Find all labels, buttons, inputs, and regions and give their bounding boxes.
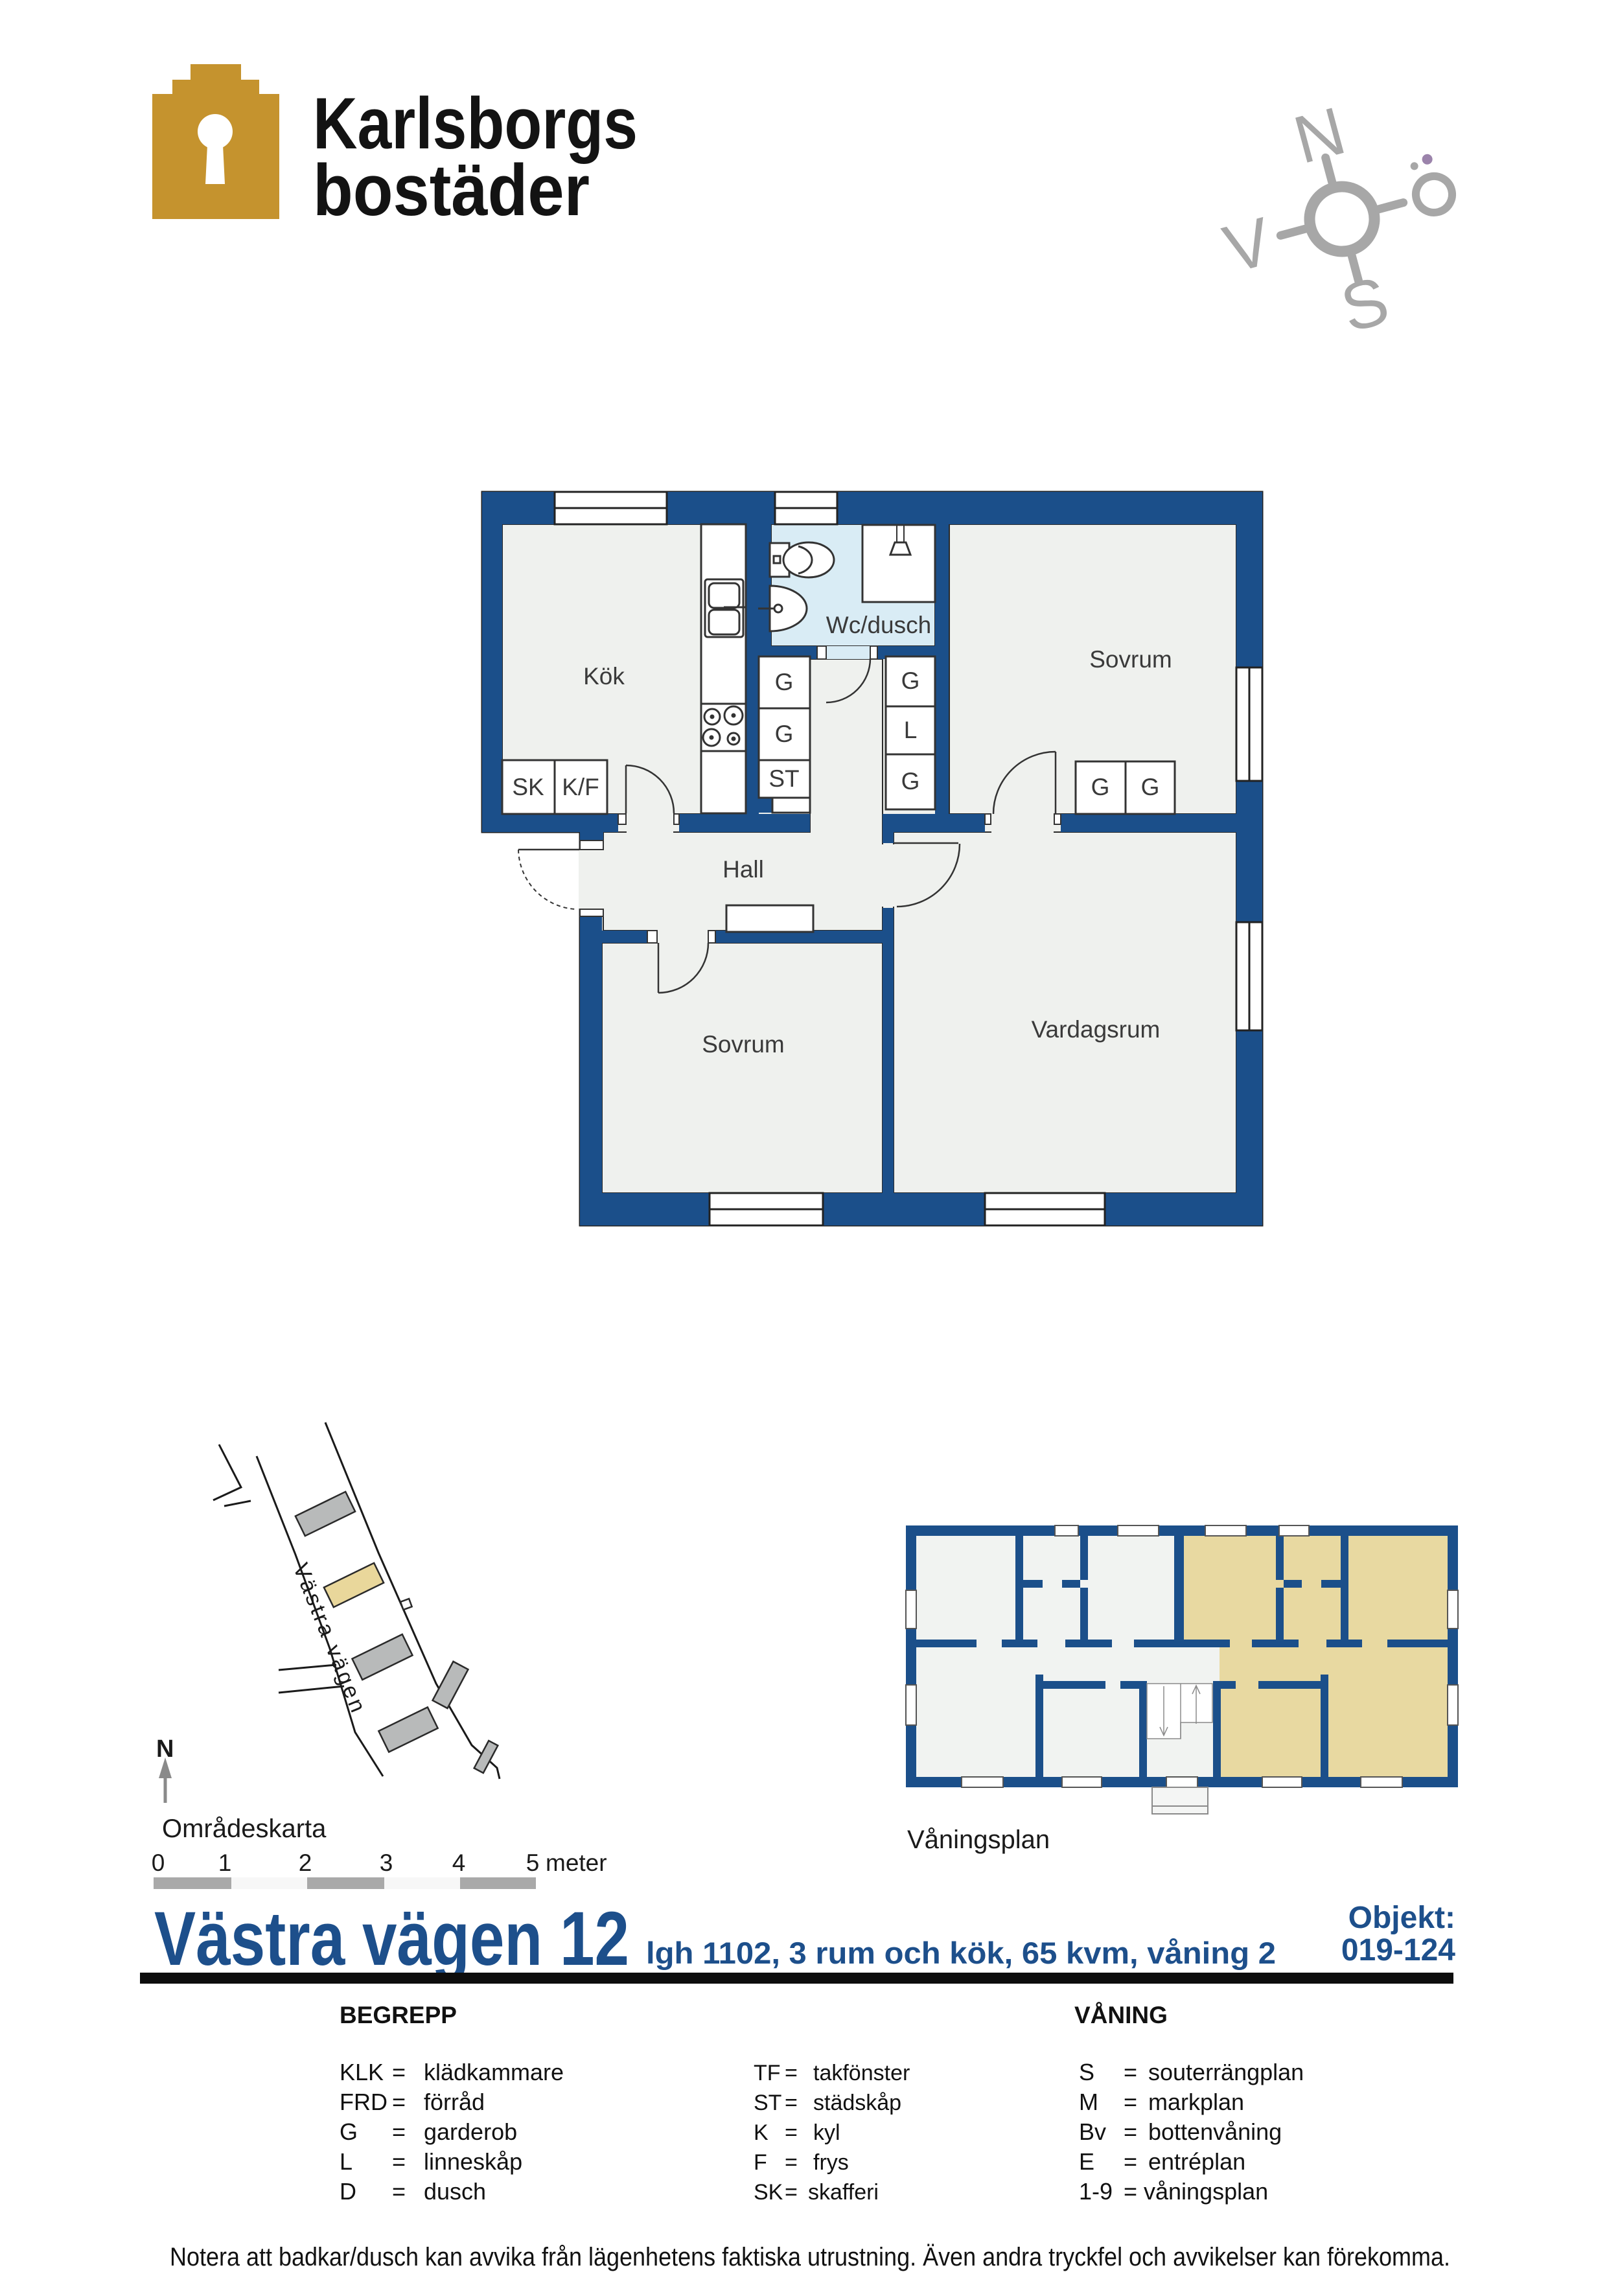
svg-text:F: F <box>754 2150 767 2175</box>
svg-text:takfönster: takfönster <box>813 2061 910 2085</box>
svg-text:0: 0 <box>152 1850 165 1876</box>
svg-text:Områdeskarta: Områdeskarta <box>162 1815 327 1843</box>
svg-text:Västra vägen 12: Västra vägen 12 <box>154 1896 629 1982</box>
svg-text:G: G <box>775 721 794 747</box>
svg-text:=: = <box>785 2091 798 2115</box>
svg-text:G: G <box>775 669 794 695</box>
svg-text:Bv: Bv <box>1079 2118 1106 2145</box>
svg-text:Vardagsrum: Vardagsrum <box>1032 1016 1161 1043</box>
svg-text:ST: ST <box>769 765 799 792</box>
svg-text:=: = <box>392 2178 406 2205</box>
svg-text:bottenvåning: bottenvåning <box>1148 2118 1282 2145</box>
svg-text:bostäder: bostäder <box>313 150 590 231</box>
svg-text:klädkammare: klädkammare <box>424 2059 564 2085</box>
svg-text:lgh 1102, 3 rum och kök, 65 k: lgh 1102, 3 rum och kök, 65 kvm, våning … <box>646 1936 1276 1970</box>
svg-text:G: G <box>340 2118 358 2145</box>
svg-text:L: L <box>904 717 918 743</box>
svg-text:=: = <box>392 2148 406 2175</box>
svg-text:4: 4 <box>452 1850 466 1876</box>
svg-text:G: G <box>901 667 920 694</box>
svg-text:1-9: 1-9 <box>1079 2178 1113 2205</box>
svg-text:BEGREPP: BEGREPP <box>340 2002 457 2028</box>
svg-text:våningsplan: våningsplan <box>1144 2178 1268 2205</box>
svg-text:markplan: markplan <box>1148 2089 1244 2115</box>
svg-text:G: G <box>1141 774 1160 800</box>
svg-text:FRD: FRD <box>340 2089 387 2115</box>
svg-text:VÅNING: VÅNING <box>1074 2002 1168 2028</box>
svg-text:Hall: Hall <box>723 856 764 883</box>
svg-text:=: = <box>392 2118 406 2145</box>
svg-text:V: V <box>1216 203 1279 288</box>
svg-text:=: = <box>1124 2118 1137 2145</box>
svg-text:entréplan: entréplan <box>1148 2148 1245 2175</box>
svg-text:Sovrum: Sovrum <box>702 1031 784 1058</box>
svg-text:Kök: Kök <box>583 663 625 690</box>
svg-text:019-124: 019-124 <box>1341 1933 1455 1967</box>
svg-text:städskåp: städskåp <box>813 2091 901 2115</box>
svg-text:S: S <box>1334 262 1396 347</box>
svg-text:=: = <box>1124 2178 1137 2205</box>
svg-text:=: = <box>785 2150 798 2175</box>
svg-text:S: S <box>1079 2059 1094 2085</box>
svg-text:ST: ST <box>754 2091 781 2115</box>
svg-text:=: = <box>785 2061 798 2085</box>
svg-text:3: 3 <box>380 1850 393 1876</box>
svg-text:G: G <box>901 768 920 794</box>
svg-text:K/F: K/F <box>562 774 599 800</box>
svg-text:förråd: förråd <box>424 2089 485 2115</box>
svg-text:Objekt:: Objekt: <box>1348 1901 1455 1935</box>
svg-text:SK: SK <box>754 2180 783 2205</box>
svg-text:=: = <box>1124 2059 1137 2085</box>
svg-text:Notera att badkar/dusch kan av: Notera att badkar/dusch kan avvika från … <box>170 2243 1450 2271</box>
svg-text:G: G <box>1091 774 1110 800</box>
svg-text:=: = <box>392 2089 406 2115</box>
svg-text:D: D <box>340 2178 356 2205</box>
svg-text:meter: meter <box>546 1850 607 1876</box>
svg-text:garderob: garderob <box>424 2118 517 2145</box>
svg-text:kyl: kyl <box>813 2120 840 2145</box>
svg-text:=: = <box>1124 2148 1137 2175</box>
svg-text:linneskåp: linneskåp <box>424 2148 522 2175</box>
svg-text:M: M <box>1079 2089 1098 2115</box>
svg-text:dusch: dusch <box>424 2178 486 2205</box>
svg-text:=: = <box>785 2180 798 2205</box>
svg-text:souterrängplan: souterrängplan <box>1148 2059 1304 2085</box>
svg-text:SK: SK <box>512 774 544 800</box>
svg-text:E: E <box>1079 2148 1094 2175</box>
svg-text:1: 1 <box>218 1850 232 1876</box>
svg-text:=: = <box>392 2059 406 2085</box>
svg-text:frys: frys <box>813 2150 849 2175</box>
svg-text:Sovrum: Sovrum <box>1089 646 1172 673</box>
svg-text:K: K <box>754 2120 769 2145</box>
svg-text:5: 5 <box>526 1850 540 1876</box>
svg-text:Wc/dusch: Wc/dusch <box>826 612 931 638</box>
svg-text:2: 2 <box>299 1850 312 1876</box>
svg-text:=: = <box>1124 2089 1137 2115</box>
svg-text:=: = <box>785 2120 798 2145</box>
svg-text:Våningsplan: Våningsplan <box>907 1826 1050 1854</box>
svg-text:skafferi: skafferi <box>808 2180 879 2205</box>
svg-text:TF: TF <box>754 2061 781 2085</box>
svg-text:KLK: KLK <box>340 2059 384 2085</box>
svg-text:L: L <box>340 2148 353 2175</box>
svg-text:N: N <box>1286 93 1353 178</box>
